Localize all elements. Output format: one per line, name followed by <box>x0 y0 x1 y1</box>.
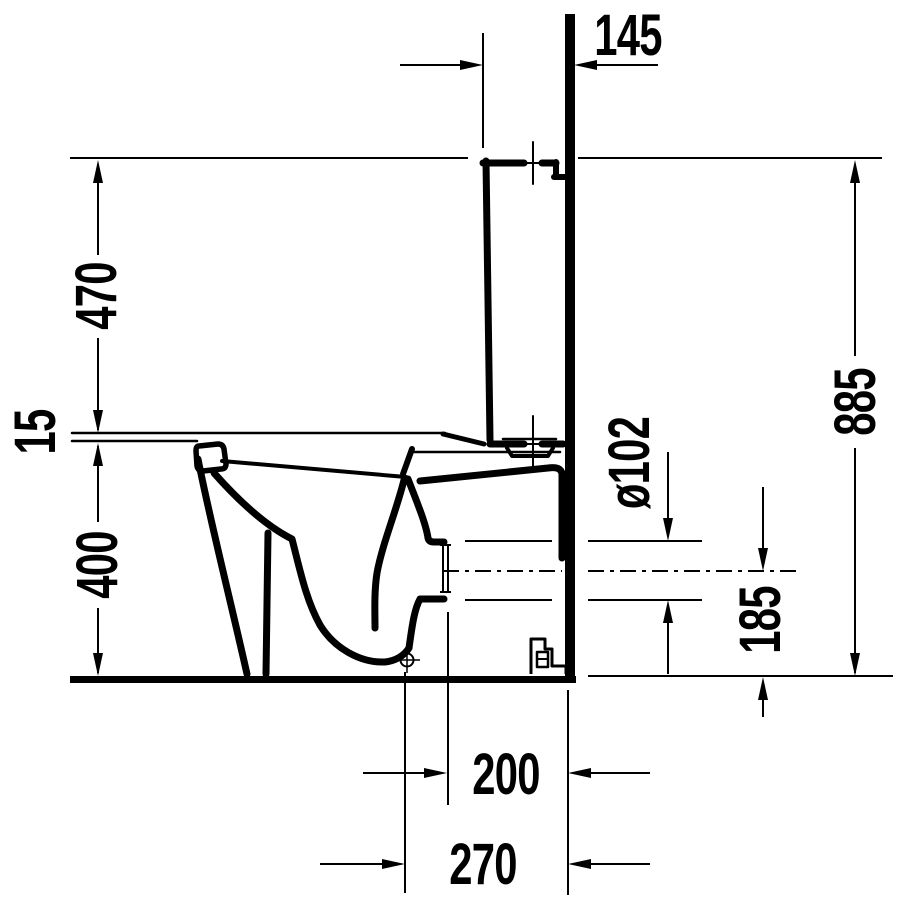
dim-label-cistern-height: 470 <box>68 262 126 330</box>
dim-label-fixing-to-wall: 270 <box>449 836 517 894</box>
technical-drawing-canvas: 145 470 15 400 885 ø102 185 200 270 <box>0 0 897 901</box>
fixing-bracket <box>531 639 566 674</box>
cistern <box>483 142 567 466</box>
dim-label-total-height: 885 <box>827 368 885 436</box>
trapway-inner-wall <box>375 480 404 628</box>
trapway <box>375 479 444 628</box>
floor <box>70 676 576 683</box>
toilet-bowl-outline <box>72 433 562 674</box>
seat-hinge <box>443 434 484 444</box>
dim-label-outlet-axis-height: 185 <box>732 586 790 654</box>
dim-label-cistern-depth: 145 <box>594 7 662 65</box>
outlet-face <box>440 545 451 592</box>
dim-label-bowl-height: 400 <box>69 531 127 599</box>
trapway-outer-wall <box>408 479 444 542</box>
dim-label-outlet-diameter: ø102 <box>601 417 659 509</box>
drawing-linework <box>0 0 897 901</box>
dim-label-seat-thickness: 15 <box>7 409 65 454</box>
floor-fixing-symbol <box>394 647 420 673</box>
dim-label-outlet-to-wall: 200 <box>472 746 540 804</box>
wall <box>565 14 575 683</box>
